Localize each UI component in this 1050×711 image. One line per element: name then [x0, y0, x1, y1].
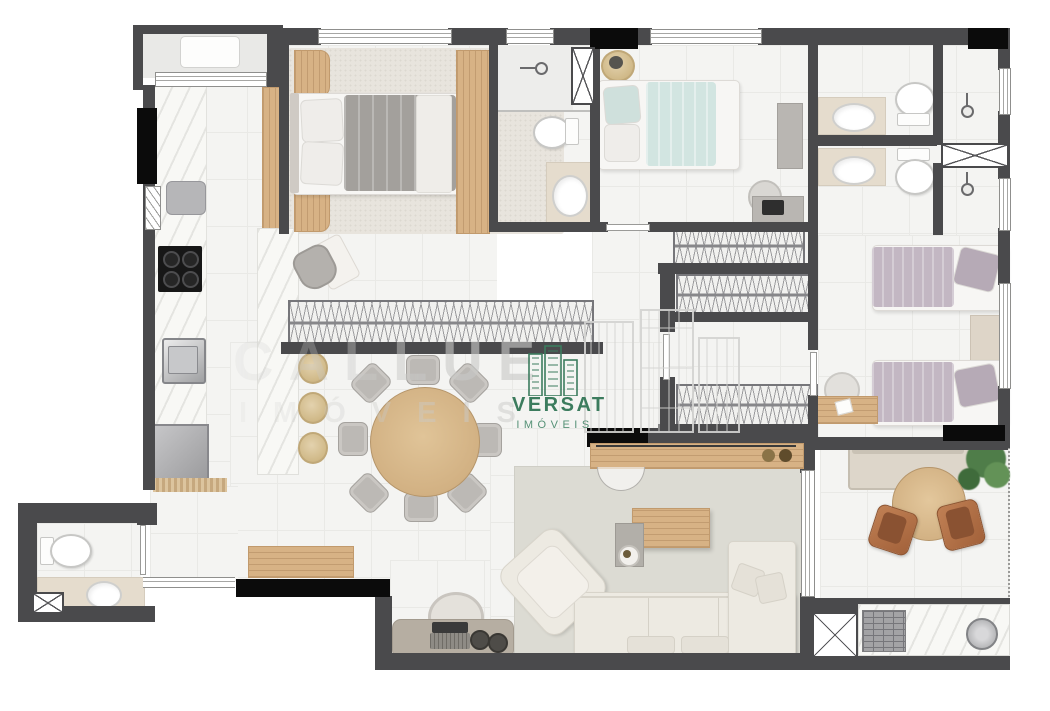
balcony-door-window [801, 470, 815, 597]
master-wardrobe [288, 300, 594, 346]
closet-wardrobe [676, 384, 818, 426]
cup-content [623, 550, 631, 558]
wall [758, 28, 972, 45]
island-stool [298, 432, 328, 464]
burner [163, 251, 180, 268]
wall [133, 25, 143, 90]
entry-hall-floor [150, 486, 238, 582]
wall [933, 163, 943, 235]
closet-door [663, 334, 670, 380]
wall [933, 45, 943, 145]
master-side-console [456, 50, 490, 234]
wall [489, 222, 594, 232]
sink [552, 175, 588, 217]
burner [163, 271, 180, 288]
twin-duvet [872, 362, 954, 422]
dining-chair [406, 355, 440, 385]
master-headboard [290, 93, 299, 193]
pillow-lavender [953, 362, 1002, 408]
pillow [300, 141, 344, 186]
island-stool [298, 352, 328, 384]
sofa-pillow [754, 571, 787, 604]
wall [281, 342, 603, 354]
wall [133, 25, 283, 34]
wall [279, 42, 289, 234]
sink [86, 581, 122, 609]
pillow-teal [602, 85, 641, 126]
wall [375, 653, 815, 670]
bathroom-window-right2 [999, 178, 1011, 231]
laptop-keyboard [430, 633, 470, 649]
bathroom-window [506, 29, 554, 44]
boundary-wall [236, 579, 390, 597]
bedroom2-window [650, 29, 762, 44]
toilet-tank [565, 118, 579, 145]
wall [658, 263, 815, 274]
burner [182, 251, 199, 268]
toilet-tank [897, 113, 930, 126]
wall [998, 228, 1010, 285]
wall [489, 45, 498, 232]
vent-duct [32, 592, 64, 614]
service-window [155, 72, 267, 87]
headphones-icon [470, 630, 490, 650]
bathroom-window-right [999, 68, 1011, 115]
wall [648, 222, 815, 232]
wall [815, 135, 937, 146]
kitchen-doormat [153, 478, 227, 492]
decor-bowl [779, 449, 792, 462]
pillow [604, 124, 640, 162]
shower-niche [571, 47, 595, 105]
kitchen-appliance [153, 424, 209, 480]
shaft [137, 108, 157, 184]
laptop [762, 200, 784, 215]
toilet [50, 534, 92, 568]
bedroom2-dresser [777, 103, 803, 169]
toilet [895, 82, 935, 117]
floor-plan: CALLUE IMÓVEIS VERSAT IMÓVEIS [0, 0, 1050, 711]
sink [832, 103, 876, 132]
wall [137, 503, 157, 525]
shower-area [497, 45, 573, 111]
bedroom2-rug-decor [609, 56, 623, 69]
kitchen-sink-basin [168, 346, 198, 374]
twin-bedroom-window [999, 283, 1011, 389]
sideboard-edge [596, 445, 796, 447]
toilet [895, 159, 935, 195]
bed-runner [416, 95, 452, 193]
decor-bowl [762, 449, 775, 462]
burner [182, 271, 199, 288]
shower-head-icon [961, 105, 974, 118]
wall [673, 312, 815, 322]
sofa-footrest [681, 636, 729, 654]
master-window [318, 29, 452, 44]
nightstand [294, 50, 330, 97]
headphones-icon [488, 633, 508, 653]
shower-head-icon [961, 183, 974, 196]
closet-wardrobe [676, 274, 818, 316]
wall [550, 28, 592, 45]
twin-bedroom-door [810, 352, 817, 396]
wall [808, 235, 818, 350]
shaft [943, 425, 1005, 441]
dining-chair [338, 422, 368, 456]
wall [448, 28, 508, 45]
shower-glass [497, 110, 592, 112]
bedroom2-duvet [646, 82, 716, 166]
entry-bench [248, 546, 354, 578]
shower-head-icon [535, 62, 548, 75]
coffee-machine [166, 181, 206, 215]
plant [984, 462, 1010, 488]
dining-table [370, 387, 480, 497]
sink [832, 156, 876, 185]
shaft [590, 28, 638, 49]
bbq-sink [966, 618, 998, 650]
vent-panel [145, 186, 161, 230]
sliding-door [143, 577, 235, 588]
pillow [300, 98, 344, 143]
shower-niche [941, 143, 1009, 168]
shaft [968, 28, 1008, 49]
sofa-footrest [627, 636, 675, 654]
duct-shaft [812, 612, 858, 658]
wall [660, 377, 675, 430]
laptop-screen [432, 622, 468, 633]
island-stool [298, 392, 328, 424]
bedroom2-door [606, 224, 650, 231]
powder-room-door [140, 525, 146, 575]
twin-duvet [872, 247, 954, 307]
bbq-grill [862, 610, 906, 652]
service-appliance [180, 36, 240, 68]
